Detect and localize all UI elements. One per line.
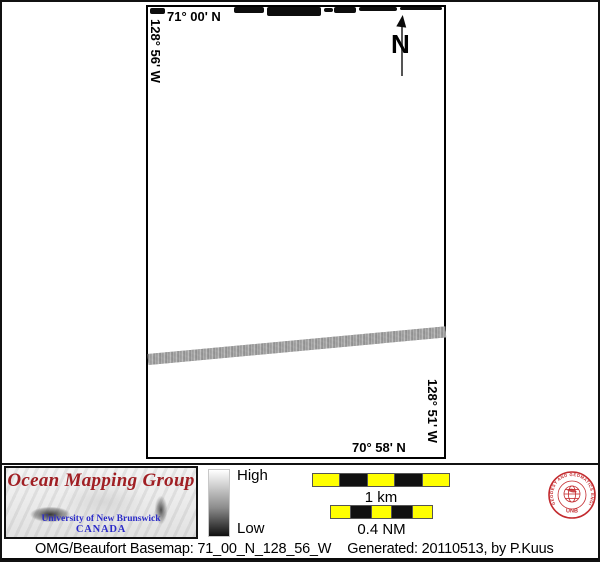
north-arrow-head	[396, 14, 407, 27]
scalebar-km-label: 1 km	[312, 489, 450, 506]
logo-country: CANADA	[6, 524, 196, 535]
scalebar-segment	[423, 474, 449, 486]
longitude-label-left: 128° 56' W	[148, 19, 163, 83]
data-noise-smudge	[324, 8, 333, 12]
longitude-label-right: 128° 51' W	[425, 379, 440, 443]
data-noise-smudge	[359, 7, 397, 11]
omg-logo: Ocean Mapping Group University of New Br…	[4, 466, 198, 539]
footer-divider	[2, 463, 600, 465]
footer-caption: OMG/Beaufort Basemap: 71_00_N_128_56_WGe…	[35, 541, 554, 557]
legend-low-label: Low	[237, 520, 265, 537]
scalebar-segment	[372, 506, 392, 518]
scalebar-segment	[368, 474, 395, 486]
data-noise-smudge	[267, 7, 321, 16]
basemap-image: 71° 00' N 128° 56' W 128° 51' W 70° 58' …	[0, 0, 600, 562]
data-noise-smudge	[400, 7, 442, 10]
generated-by: Generated: 20110513, by P.Kuus	[347, 541, 553, 557]
scalebar-segment	[413, 506, 432, 518]
seal-bottom-text: UNB	[566, 509, 578, 515]
scalebar-segment	[331, 506, 351, 518]
scalebar-km	[312, 473, 450, 487]
scalebar-segment	[340, 474, 367, 486]
north-arrow-letter: N	[391, 29, 410, 60]
seal-ring-text: GEODESY AND GEOMATICS ENGINEERING	[547, 469, 595, 507]
depth-legend-bar	[208, 469, 230, 537]
svg-text:GEODESY AND GEOMATICS ENGINEER: GEODESY AND GEOMATICS ENGINEERING	[547, 469, 595, 507]
scalebar-segment	[392, 506, 412, 518]
basemap-name: OMG/Beaufort Basemap: 71_00_N_128_56_W	[35, 541, 331, 557]
bottom-border	[2, 558, 600, 562]
logo-institution: University of New Brunswick	[6, 514, 196, 524]
north-arrow-icon: N	[382, 15, 422, 79]
scalebar-nm	[330, 505, 433, 519]
scalebar-segment	[395, 474, 422, 486]
data-noise-smudge	[150, 8, 165, 14]
latitude-label-top: 71° 00' N	[167, 9, 221, 24]
legend-high-label: High	[237, 467, 268, 484]
scalebar-segment	[313, 474, 340, 486]
scalebar-segment	[351, 506, 371, 518]
data-noise-smudge	[334, 7, 356, 13]
unb-seal-icon: GEODESY AND GEOMATICS ENGINEERING UNB	[547, 469, 597, 528]
data-noise-smudge	[234, 7, 264, 13]
scalebar-nm-label: 0.4 NM	[330, 521, 433, 538]
logo-title: Ocean Mapping Group	[6, 470, 196, 492]
latitude-label-bottom: 70° 58' N	[352, 440, 406, 455]
